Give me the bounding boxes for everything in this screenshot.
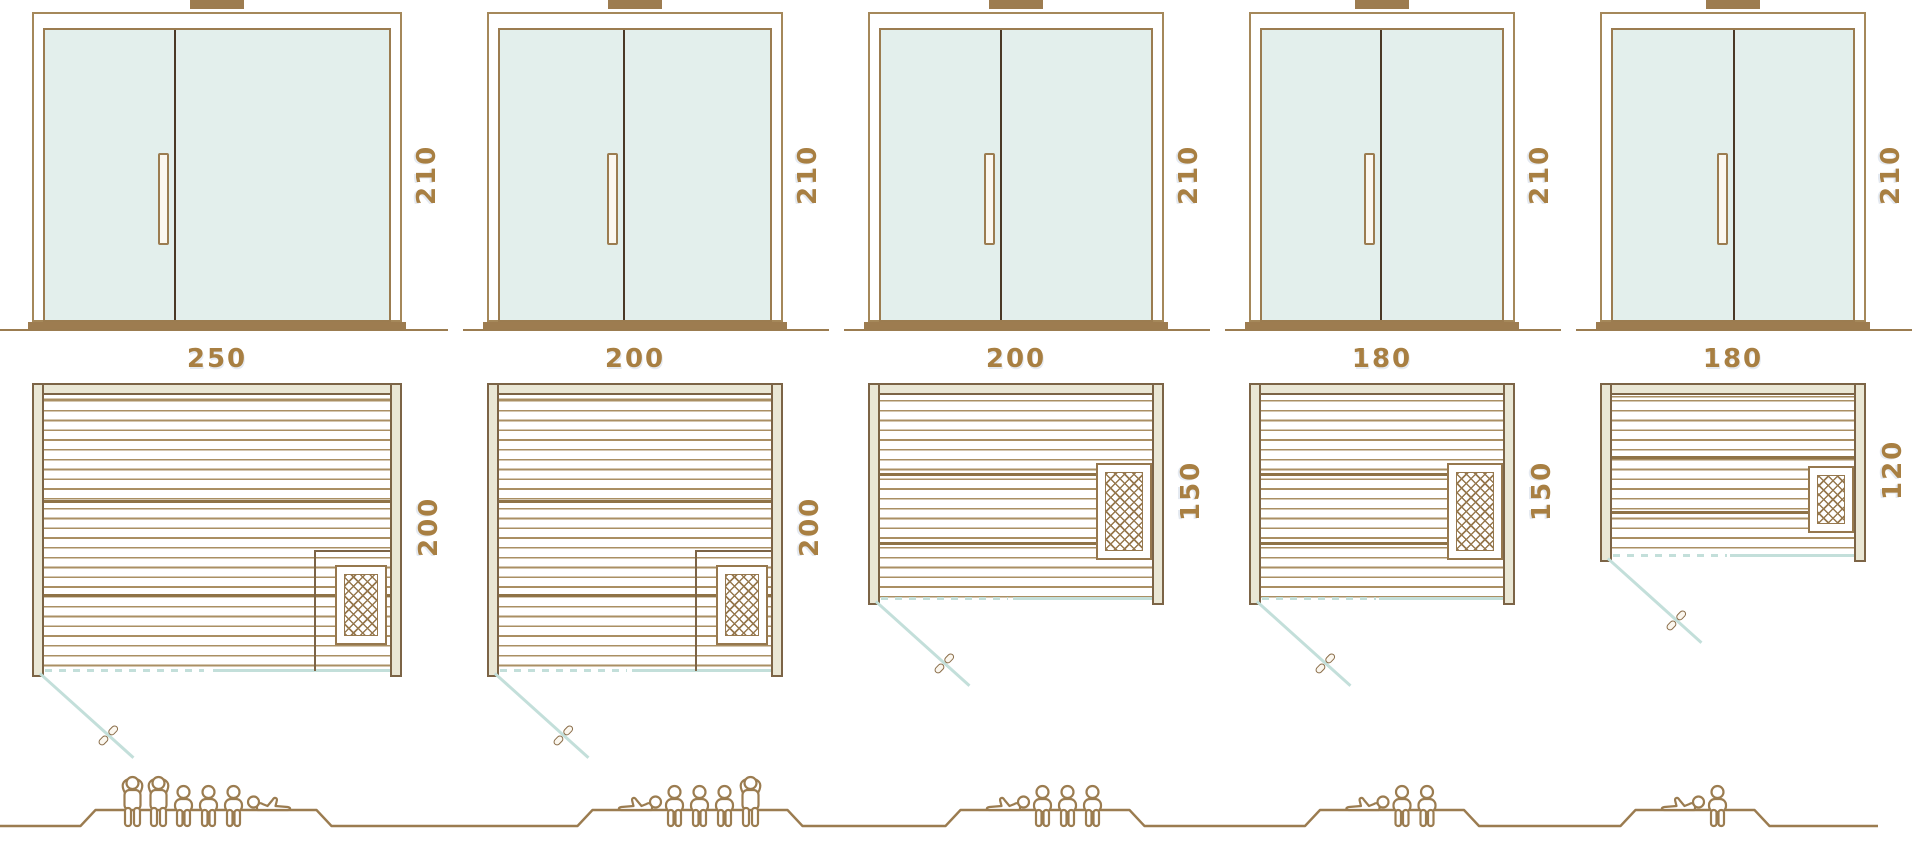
plan-wall-top <box>1600 383 1866 395</box>
depth-dimension-label: 200 <box>412 457 446 597</box>
sauna-unit-sauna-200x150: 210 200 150 <box>868 0 1164 856</box>
door-sill <box>1245 322 1519 329</box>
heater-lattice-icon <box>344 574 378 636</box>
door-handle <box>607 153 618 245</box>
door-sill <box>864 322 1168 329</box>
glass-front-line <box>1730 554 1854 557</box>
door-divider <box>1733 30 1735 320</box>
heater-lattice-icon <box>1817 475 1845 524</box>
glass-door-front <box>1611 28 1855 322</box>
roof-vent <box>989 0 1043 9</box>
door-divider <box>1380 30 1382 320</box>
floor-plan <box>868 383 1164 599</box>
ground-line <box>0 329 448 331</box>
glass-front-dashed-line <box>1613 554 1727 557</box>
depth-dimension-label: 200 <box>793 457 827 597</box>
ground-line <box>1576 329 1912 331</box>
door-divider <box>623 30 625 320</box>
door-swing-line <box>39 672 134 758</box>
heater-lattice-icon <box>1456 472 1494 551</box>
ground-line <box>844 329 1210 331</box>
door-sill <box>1596 322 1870 329</box>
roof-vent <box>1355 0 1409 9</box>
ground-line <box>463 329 829 331</box>
bench-edge-line <box>44 500 390 503</box>
sauna-unit-sauna-180x150: 210 180 150 <box>1249 0 1515 856</box>
heater-icon <box>1808 466 1854 533</box>
door-swing-line <box>1607 557 1702 643</box>
depth-dimension-label: 120 <box>1876 400 1910 540</box>
glass-front-line <box>1379 597 1503 600</box>
door-swing-line <box>1256 600 1351 686</box>
plan-wall-right <box>390 383 402 677</box>
plan-wall-right <box>1152 383 1164 605</box>
glass-door-front <box>879 28 1153 322</box>
plan-wall-left <box>1600 383 1612 562</box>
sauna-size-diagram: 210 250 200 2 <box>0 0 1920 856</box>
door-handle <box>1364 153 1375 245</box>
plan-wall-right <box>1503 383 1515 605</box>
width-dimension-label: 180 <box>1600 344 1866 374</box>
plan-wall-top <box>487 383 783 395</box>
bench-edge-line <box>1612 456 1854 459</box>
plan-wall-top <box>1249 383 1515 395</box>
floor-plan <box>1600 383 1866 556</box>
sauna-unit-sauna-250x200: 210 250 200 <box>32 0 402 856</box>
heater-icon <box>335 565 387 645</box>
plan-wall-top <box>868 383 1164 395</box>
door-handle <box>158 153 169 245</box>
glass-door-front <box>498 28 772 322</box>
plan-wall-left <box>32 383 44 677</box>
door-swing-line <box>494 672 589 758</box>
glass-front-dashed-line <box>500 669 627 672</box>
door-handle <box>1717 153 1728 245</box>
heater-icon <box>1096 463 1152 560</box>
sauna-unit-sauna-180x120: 210 180 120 <box>1600 0 1866 856</box>
heater-icon <box>716 565 768 645</box>
depth-dimension-label: 150 <box>1174 421 1208 561</box>
height-dimension-label: 210 <box>1172 100 1206 250</box>
plan-wall-top <box>32 383 402 395</box>
heater-lattice-icon <box>1105 472 1143 551</box>
roof-vent <box>190 0 244 9</box>
height-dimension-label: 210 <box>410 100 444 250</box>
door-divider <box>174 30 176 320</box>
height-dimension-label: 210 <box>791 100 825 250</box>
floor-plan <box>487 383 783 671</box>
door-sill <box>28 322 406 329</box>
glass-door-front <box>1260 28 1504 322</box>
sauna-unit-sauna-200x200: 210 200 200 <box>487 0 783 856</box>
plan-wall-right <box>771 383 783 677</box>
door-swing-line <box>875 600 970 686</box>
width-dimension-label: 180 <box>1249 344 1515 374</box>
height-dimension-label: 210 <box>1523 100 1557 250</box>
roof-vent <box>1706 0 1760 9</box>
ground-line <box>1225 329 1561 331</box>
width-dimension-label: 200 <box>487 344 783 374</box>
glass-front-dashed-line <box>881 597 1008 600</box>
glass-front-dashed-line <box>45 669 204 672</box>
door-sill <box>483 322 787 329</box>
glass-front-line <box>1013 597 1152 600</box>
heater-icon <box>1447 463 1503 560</box>
plan-wall-left <box>868 383 880 605</box>
door-divider <box>1000 30 1002 320</box>
width-dimension-label: 250 <box>32 344 402 374</box>
plan-wall-left <box>1249 383 1261 605</box>
glass-door-front <box>43 28 391 322</box>
floor-plan <box>1249 383 1515 599</box>
width-dimension-label: 200 <box>868 344 1164 374</box>
depth-dimension-label: 150 <box>1525 421 1559 561</box>
bench-edge-line <box>499 500 771 503</box>
glass-front-dashed-line <box>1262 597 1376 600</box>
heater-lattice-icon <box>725 574 759 636</box>
door-handle <box>984 153 995 245</box>
plan-wall-right <box>1854 383 1866 562</box>
height-dimension-label: 210 <box>1874 100 1908 250</box>
roof-vent <box>608 0 662 9</box>
plan-wall-left <box>487 383 499 677</box>
floor-plan <box>32 383 402 671</box>
